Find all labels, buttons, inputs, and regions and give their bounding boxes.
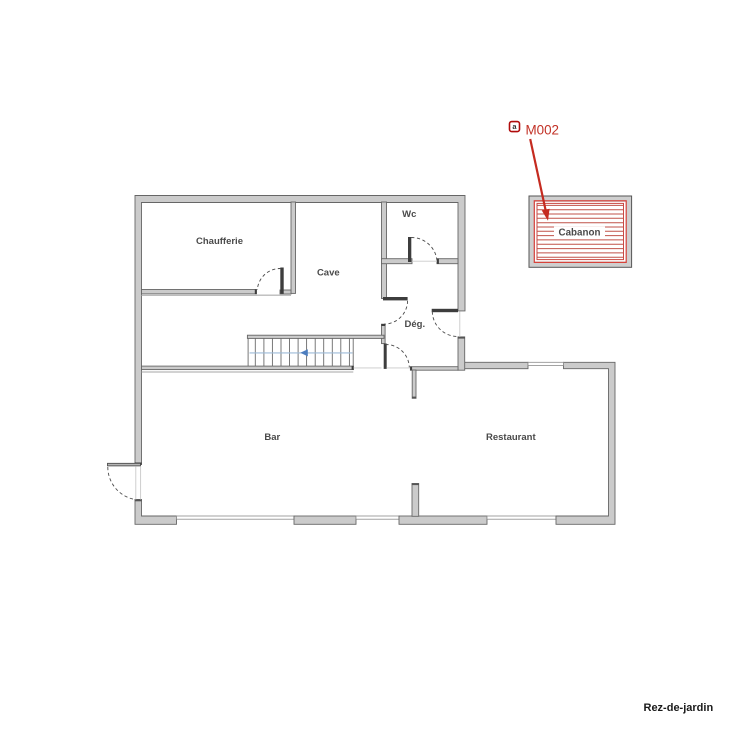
svg-text:Rez-de-jardin: Rez-de-jardin (644, 702, 714, 714)
svg-text:Cabanon: Cabanon (559, 227, 601, 238)
svg-text:Restaurant: Restaurant (486, 432, 536, 443)
svg-text:Bar: Bar (264, 432, 280, 443)
svg-text:Wc: Wc (402, 209, 416, 220)
svg-text:Cave: Cave (317, 268, 340, 279)
svg-text:Dég.: Dég. (405, 319, 426, 330)
svg-text:M002: M002 (526, 123, 560, 138)
svg-text:Chaufferie: Chaufferie (196, 236, 243, 247)
